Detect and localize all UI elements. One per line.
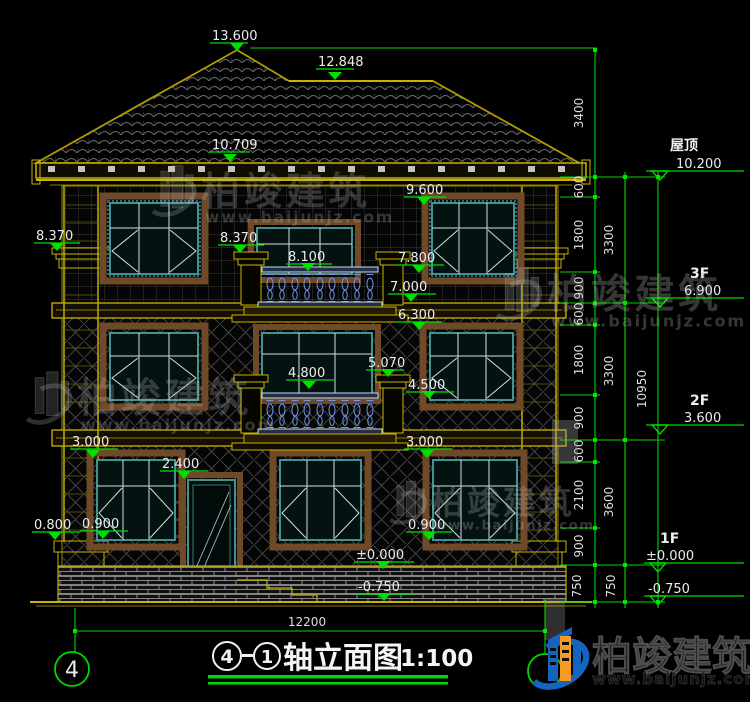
level-peak: 13.600 (212, 29, 258, 44)
title-underline-1 (208, 675, 448, 679)
title-scale: 1:100 (400, 646, 473, 672)
title-dash (242, 654, 253, 657)
window-1f-center (273, 453, 368, 547)
window-2f-right (423, 326, 520, 407)
window-3f-right (425, 196, 521, 281)
balcony-2f-bottom-rail (258, 429, 382, 434)
dim-12200: 12200 (288, 615, 326, 629)
cad-elevation-screenshot: 柏竣建筑 www.baijunjz.com (0, 0, 750, 702)
roof (32, 50, 590, 185)
dim-1800-a: 1800 (572, 220, 586, 251)
dim-3600: 3600 (602, 487, 616, 518)
floor-level-panel: 屋顶 10.200 3F 6.900 2F 3.600 1F ±0.000 -0… (644, 138, 744, 605)
dim-10950: 10950 (635, 370, 649, 408)
dim-750-b: 750 (604, 575, 618, 598)
window-3f-left (103, 196, 205, 281)
logo-site-text: www.baijunjz.com (592, 670, 750, 688)
mark-1f-val: ±0.000 (646, 549, 694, 564)
level-f3-slab: 7.000 (390, 280, 427, 295)
level-ridge: 12.848 (318, 55, 364, 70)
balcony-2f-slab (244, 434, 396, 443)
mark-2f-val: 3.600 (684, 411, 721, 426)
level-zero: ±0.000 (356, 548, 404, 563)
axis-bubble-left-label: 4 (65, 658, 79, 683)
level-base-left: 0.800 (34, 518, 71, 533)
entrance-door (183, 475, 240, 580)
balcony-2f-slab-edge (232, 443, 408, 450)
plinth (30, 566, 592, 606)
title-underline-2 (208, 682, 448, 685)
dim-3300-b: 3300 (602, 356, 616, 387)
mark-2f-name: 2F (690, 393, 709, 409)
level-cornice-center: 8.370 (220, 231, 257, 246)
balcony-3f-slab (244, 307, 396, 315)
title-axis-b: 1 (261, 647, 274, 668)
roof-tiles (36, 50, 581, 164)
mark-roof-name: 屋顶 (670, 138, 698, 154)
level-f3-win-top: 9.600 (406, 183, 443, 198)
level-f2-rail: 4.800 (288, 366, 325, 381)
title-axis-a: 4 (220, 646, 233, 668)
mark-roof-val: 10.200 (676, 157, 722, 172)
mark-1f-name: 1F (660, 531, 679, 547)
title-name: 轴立面图 (283, 641, 403, 676)
level-f2-top: 6.300 (398, 308, 435, 323)
dim-600-a: 600 (572, 176, 586, 199)
window-2f-center (256, 327, 378, 401)
axis-bubble-left: 4 (55, 652, 89, 686)
brand-logo: 柏竣建筑 www.baijunjz.com (522, 627, 750, 696)
level-eave: 10.709 (212, 138, 258, 153)
level-f1-top-right: 3.000 (406, 435, 443, 450)
dim-roof-3400: 3400 (572, 98, 586, 129)
level-f2-post: 5.070 (368, 356, 405, 371)
level-f3-rail: 8.100 (288, 250, 325, 265)
watermark-fragment (552, 420, 578, 464)
drawing-title: 4 1 轴立面图 1:100 (208, 641, 473, 685)
level-minus: -0.750 (358, 580, 400, 595)
dim-1800-b: 1800 (572, 345, 586, 376)
level-f1-sill-left: 0.900 (82, 517, 119, 532)
balcony-3f-bottom-rail (258, 302, 382, 307)
mark-ground-val: -0.750 (648, 582, 690, 597)
level-cornice-left: 8.370 (36, 229, 73, 244)
balcony-3f-top-rail (262, 267, 378, 272)
dim-3300-a: 3300 (602, 225, 616, 256)
dim-750-a: 750 (570, 575, 584, 598)
level-f2-sill: 4.500 (408, 378, 445, 393)
level-f3-sill: 7.800 (398, 251, 435, 266)
level-door-top: 2.400 (162, 457, 199, 472)
level-f1-top-left: 3.000 (72, 435, 109, 450)
elevation-drawing-canvas: 柏竣建筑 www.baijunjz.com (0, 0, 750, 702)
dim-900-c: 900 (572, 535, 586, 558)
balcony-2f-top-rail (262, 393, 378, 398)
balcony-3f-slab-edge (232, 315, 408, 322)
